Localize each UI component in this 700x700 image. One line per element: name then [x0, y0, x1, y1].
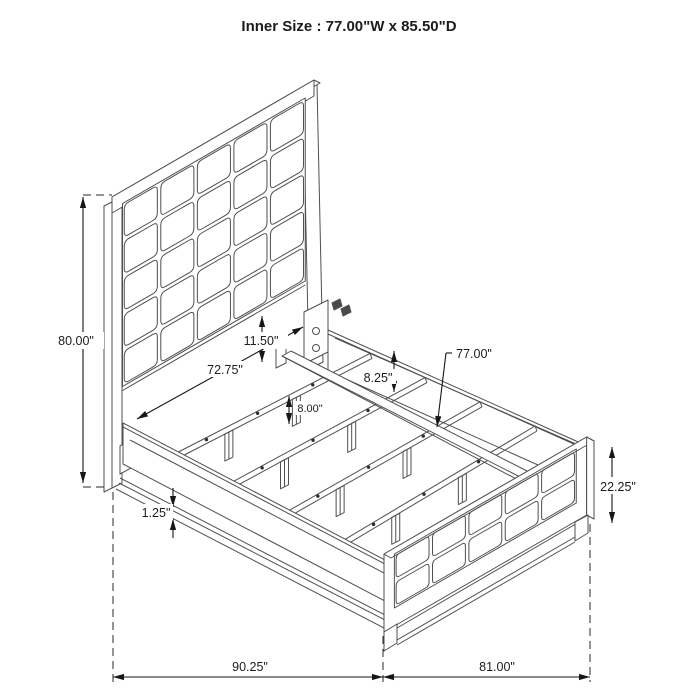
- screw-hole: [422, 434, 425, 437]
- page-title: Inner Size : 77.00"W x 85.50"D: [241, 18, 456, 35]
- dim-rail-lip-label: 1.25": [142, 506, 171, 520]
- dim-footboard-height-label: 22.25": [600, 480, 636, 494]
- arrowhead: [137, 411, 148, 419]
- arrowhead: [259, 351, 265, 362]
- rail-hook: [332, 299, 342, 310]
- bed-frame-art: [104, 80, 594, 651]
- screw-hole: [477, 460, 480, 463]
- arrowhead: [579, 674, 590, 680]
- slat: [279, 407, 482, 522]
- dim-slat-length-label: 77.00": [456, 347, 492, 361]
- bracket-hole: [313, 345, 320, 352]
- arrowhead: [80, 197, 86, 208]
- dim-panel-gap-label: 11.50": [244, 334, 279, 348]
- dimension-diagram: 80.00" 72.75" 11.50" 8.00" 8.25" 77.00" …: [0, 0, 700, 700]
- slat: [223, 383, 427, 493]
- screw-hole: [422, 493, 425, 496]
- screw-hole: [311, 439, 314, 442]
- arrowhead: [292, 327, 303, 335]
- dim-overall-depth-label: 90.25": [232, 660, 268, 674]
- rail-hook: [341, 305, 351, 316]
- screw-hole: [205, 438, 208, 441]
- dim-overall-width-label: 81.00": [479, 660, 515, 674]
- edge-line: [123, 427, 385, 564]
- screw-hole: [367, 466, 370, 469]
- arrowhead: [286, 396, 292, 407]
- dim-rail-height-label: 8.25": [364, 371, 393, 385]
- footboard-end: [587, 437, 594, 519]
- footboard-face: [384, 437, 587, 632]
- bed-drawing: 80.00" 72.75" 11.50" 8.00" 8.25" 77.00" …: [0, 0, 700, 700]
- screw-hole: [256, 412, 259, 415]
- arrowhead: [170, 519, 176, 530]
- arrowhead: [80, 472, 86, 483]
- arrowhead: [609, 512, 615, 523]
- arrowhead: [391, 351, 397, 362]
- dim-inner-width-label: 72.75": [207, 363, 243, 377]
- bracket-hole: [313, 328, 320, 335]
- arrowhead: [113, 674, 124, 680]
- arrowhead: [372, 674, 383, 680]
- arrowhead: [286, 413, 292, 424]
- headboard-left-post: [104, 202, 112, 492]
- screw-hole: [311, 383, 314, 386]
- dim-leg-height-label: 8.00": [297, 403, 322, 415]
- arrowhead: [259, 316, 265, 327]
- screw-hole: [260, 466, 263, 469]
- screw-hole: [366, 409, 369, 412]
- arrowhead: [609, 447, 615, 458]
- screw-hole: [372, 523, 375, 526]
- arrowhead: [383, 674, 394, 680]
- slat: [221, 378, 425, 488]
- screw-hole: [316, 494, 319, 497]
- headboard-left-post: [112, 197, 122, 488]
- dim-headboard-height-label: 80.00": [58, 334, 94, 348]
- slat: [277, 402, 480, 517]
